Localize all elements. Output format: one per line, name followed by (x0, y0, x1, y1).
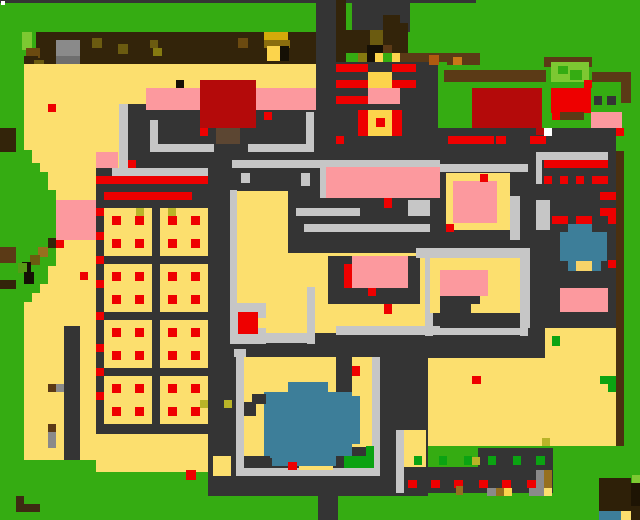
map-tile-GD (264, 32, 288, 40)
map-tile-BL (592, 261, 601, 271)
map-tile-R (96, 344, 104, 352)
map-tile-PK (440, 270, 488, 296)
map-tile-R (336, 80, 368, 88)
map-tile-R (384, 304, 392, 314)
map-tile-K (367, 53, 375, 62)
map-tile-BG (600, 376, 616, 384)
map-tile-R (352, 366, 360, 376)
map-tile-C (316, 0, 336, 168)
map-tile-R (191, 384, 200, 393)
map-tile-OV (136, 208, 144, 216)
map-tile-OV (542, 438, 550, 446)
map-tile-DB (383, 15, 400, 30)
map-tile-G (0, 460, 96, 520)
map-tile-R (552, 112, 560, 120)
map-tile-BL (599, 511, 621, 520)
map-tile-OL (150, 40, 158, 48)
map-tile-BG (552, 336, 560, 346)
map-tile-DB (400, 23, 408, 45)
map-tile-R (480, 174, 488, 182)
map-tile-PK (256, 88, 318, 110)
map-tile-R (560, 176, 568, 184)
map-tile-DR (472, 88, 542, 132)
map-tile-WY (392, 53, 400, 62)
map-tile-B2 (400, 53, 447, 62)
map-tile-GY (266, 333, 307, 343)
map-tile-BG (344, 456, 374, 468)
map-tile-R (186, 470, 196, 480)
map-tile-R (608, 216, 616, 224)
map-tile-B3 (496, 488, 504, 496)
map-tile-GY (408, 200, 430, 216)
map-tile-R (96, 368, 104, 376)
map-tile-C (426, 346, 545, 358)
map-tile-R (96, 256, 104, 264)
map-tile-R (104, 192, 192, 200)
map-tile-WY (368, 72, 392, 88)
map-tile-B2 (444, 70, 546, 82)
map-tile-MG (56, 384, 64, 392)
map-tile-MG (536, 470, 544, 496)
map-tile-K (367, 45, 383, 53)
map-tile-R (128, 160, 136, 168)
map-tile-T (544, 488, 552, 496)
map-tile-BR (616, 151, 624, 446)
map-tile-WY (267, 46, 280, 61)
map-tile-R (168, 407, 177, 416)
map-tile-PK (453, 181, 497, 223)
map-tile-R (544, 160, 608, 168)
map-tile-C (244, 402, 256, 416)
map-tile-R (544, 176, 552, 184)
map-tile-GY (119, 104, 128, 168)
map-tile-R (392, 80, 416, 88)
map-tile-W (1, 1, 5, 5)
map-tile-R (527, 480, 536, 488)
game-world-map (0, 0, 640, 520)
map-tile-OL (92, 38, 102, 48)
map-tile-DB (0, 128, 16, 152)
map-tile-DR (200, 80, 256, 128)
map-tile-GY (150, 144, 214, 152)
map-tile-GY (520, 248, 530, 336)
map-tile-BL (288, 382, 328, 392)
map-tile-R (368, 288, 376, 296)
map-tile-OR (453, 57, 462, 65)
map-tile-PK (560, 288, 608, 312)
map-tile-B2 (560, 112, 584, 120)
map-tile-R (168, 216, 177, 225)
map-tile-R (191, 351, 200, 360)
map-tile-N (631, 506, 640, 520)
map-tile-BL (560, 232, 607, 261)
map-tile-OV (224, 400, 232, 408)
map-tile-R (358, 110, 368, 136)
map-tile-R (96, 392, 104, 400)
map-tile-DB (0, 280, 16, 289)
map-tile-R (56, 240, 64, 248)
map-tile-BG (488, 456, 496, 465)
map-tile-R (376, 118, 385, 127)
map-tile-R (112, 295, 121, 304)
map-tile-R (135, 384, 144, 393)
map-tile-MG (529, 488, 536, 496)
map-tile-R (168, 384, 177, 393)
map-tile-BG (366, 446, 374, 456)
map-tile-B2 (621, 72, 631, 103)
map-tile-R (135, 328, 144, 337)
map-tile-R (446, 224, 454, 232)
map-tile-PK (56, 200, 96, 240)
map-tile-BL (264, 392, 352, 456)
map-tile-R (530, 136, 546, 144)
map-tile-DD (216, 128, 240, 144)
map-tile-WY (375, 53, 383, 62)
map-tile-R (135, 295, 144, 304)
map-tile-R (431, 480, 440, 488)
map-tile-T (426, 358, 545, 446)
map-tile-B4 (238, 38, 248, 48)
map-tile-GY (428, 164, 528, 172)
map-tile-R (191, 216, 200, 225)
map-tile-B3 (544, 470, 552, 488)
map-tile-R (112, 384, 121, 393)
map-tile-C (594, 96, 602, 105)
map-tile-R (135, 351, 144, 360)
map-tile-R (616, 128, 624, 136)
map-tile-R (96, 208, 104, 216)
map-tile-R (135, 216, 144, 225)
map-tile-R (600, 208, 616, 216)
map-tile-OL (30, 255, 40, 265)
map-tile-GY (416, 248, 530, 258)
map-tile-T (621, 511, 631, 520)
map-tile-R (408, 480, 417, 488)
map-tile-C (607, 96, 616, 105)
map-tile-OV (200, 400, 208, 408)
map-tile-GY (306, 112, 314, 152)
map-tile-GY (510, 196, 520, 240)
map-tile-R (344, 264, 352, 288)
map-tile-BL (568, 261, 576, 271)
map-tile-OV (472, 457, 480, 465)
map-tile-T (96, 434, 208, 472)
map-tile-R (112, 407, 121, 416)
map-tile-T2 (576, 261, 592, 271)
map-tile-BG (513, 456, 521, 465)
map-tile-R (168, 295, 177, 304)
map-tile-R (448, 136, 494, 144)
map-tile-TB (16, 504, 40, 512)
map-tile-OL (370, 30, 383, 45)
map-tile-R (112, 328, 121, 337)
map-tile-T (258, 318, 266, 328)
map-tile-C (426, 65, 438, 103)
map-tile-T (471, 304, 480, 313)
map-tile-BL (272, 456, 336, 466)
map-tile-R (112, 239, 121, 248)
map-tile-BL (568, 224, 592, 232)
map-tile-G (40, 172, 48, 284)
map-tile-R (336, 136, 344, 144)
map-tile-R (168, 239, 177, 248)
map-tile-OV (168, 208, 176, 216)
map-tile-GY (112, 168, 208, 176)
map-tile-K (176, 80, 184, 88)
map-tile-GY (307, 287, 315, 344)
map-tile-B3 (456, 486, 463, 495)
map-tile-R (288, 462, 297, 470)
map-tile-K (24, 272, 34, 284)
map-tile-GY (236, 349, 244, 476)
map-tile-R (168, 351, 177, 360)
map-tile-R (392, 110, 402, 136)
map-tile-B2 (48, 424, 56, 432)
map-tile-N (599, 478, 631, 511)
map-tile-PK (352, 256, 408, 288)
map-tile-R (551, 88, 591, 113)
map-tile-R (600, 192, 616, 200)
map-tile-W (544, 128, 552, 136)
map-tile-R (552, 216, 568, 224)
map-tile-WY (504, 488, 512, 496)
map-tile-MG (487, 488, 496, 496)
map-tile-PK (368, 88, 400, 104)
map-tile-R (200, 128, 208, 136)
map-tile-DG (358, 53, 367, 62)
map-tile-R (608, 260, 616, 268)
map-tile-R (112, 216, 121, 225)
map-tile-R (96, 176, 208, 184)
map-tile-PK (326, 167, 440, 198)
map-tile-R (479, 480, 488, 488)
map-tile-R (191, 272, 200, 281)
map-tile-R (80, 272, 88, 280)
map-tile-R (135, 239, 144, 248)
map-tile-MG (48, 432, 56, 448)
map-tile-BG (608, 384, 616, 392)
map-tile-G (48, 190, 56, 266)
map-tile-B2 (447, 53, 480, 65)
map-tile-T (213, 456, 231, 476)
map-tile-C (64, 326, 80, 460)
map-tile-R (592, 176, 608, 184)
map-tile-R (502, 480, 511, 488)
map-tile-GY (304, 224, 430, 232)
map-tile-DR (536, 128, 544, 135)
map-tile-R (191, 295, 200, 304)
map-tile-LG (632, 475, 640, 483)
map-tile-R (48, 104, 56, 112)
map-tile-G (558, 66, 568, 74)
map-tile-R (135, 407, 144, 416)
map-tile-BG (439, 456, 447, 465)
map-tile-R (191, 407, 200, 416)
map-tile-R (96, 280, 104, 288)
map-tile-MG (56, 40, 80, 56)
map-tile-R (576, 216, 592, 224)
map-tile-BG (464, 456, 472, 465)
map-tile-C (480, 313, 520, 328)
map-tile-DG (153, 48, 162, 56)
map-tile-R (496, 136, 506, 144)
map-tile-GY (301, 173, 310, 186)
map-tile-B2 (0, 247, 16, 263)
map-tile-B2 (383, 45, 392, 53)
map-tile-R (264, 112, 272, 120)
map-tile-BL (352, 396, 360, 444)
map-tile-GY (536, 160, 542, 184)
map-tile-GY (536, 200, 550, 230)
map-tile-R (96, 232, 104, 240)
map-tile-R (168, 328, 177, 337)
map-tile-GY (241, 173, 250, 183)
map-tile-R (472, 376, 481, 384)
map-tile-BG (414, 456, 422, 465)
map-tile-K (280, 46, 289, 61)
map-tile-R (384, 198, 392, 208)
map-tile-R (96, 312, 104, 320)
map-tile-R (576, 176, 584, 184)
map-tile-R (168, 272, 177, 281)
map-tile-TB (16, 496, 24, 504)
map-tile-G (570, 70, 582, 80)
map-tile-R (584, 80, 592, 88)
map-tile-R (191, 239, 200, 248)
map-tile-R (336, 96, 368, 104)
map-tile-O2 (429, 55, 439, 65)
map-tile-BG (536, 456, 545, 465)
map-tile-R (112, 272, 121, 281)
map-tile-B2 (48, 384, 56, 392)
map-tile-GY (248, 144, 314, 152)
map-tile-R (392, 64, 416, 72)
map-tile-GY (536, 152, 608, 160)
map-tile-MG2 (56, 56, 80, 64)
map-tile-R (336, 64, 368, 72)
map-tile-BL (270, 448, 280, 458)
map-tile-PK (146, 88, 200, 110)
map-tile-C (318, 486, 338, 520)
map-tile-R (112, 351, 121, 360)
map-tile-R (191, 328, 200, 337)
map-tile-GY (296, 208, 360, 216)
map-tile-R (135, 272, 144, 281)
map-tile-GY (396, 430, 404, 493)
map-tile-OL (118, 44, 128, 54)
map-tile-R (238, 312, 258, 334)
